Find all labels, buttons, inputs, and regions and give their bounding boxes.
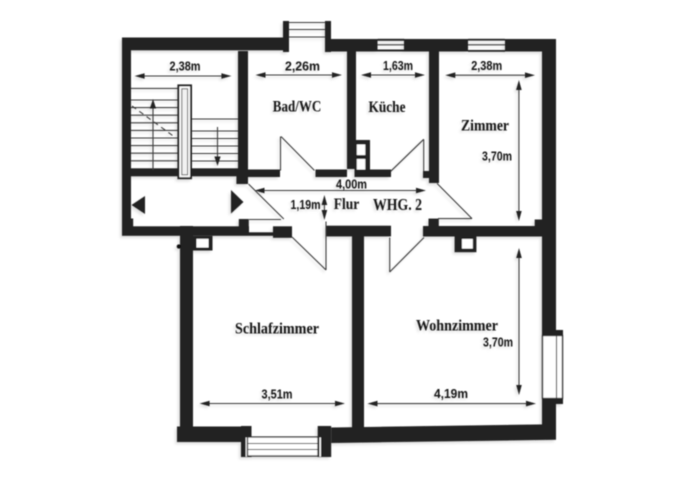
svg-text:Flur: Flur [334,196,360,213]
svg-text:Wohnzimmer: Wohnzimmer [416,318,498,335]
svg-text:1,19m: 1,19m [291,198,321,212]
svg-text:1,63m: 1,63m [383,59,413,73]
svg-text:2,26m: 2,26m [285,59,320,73]
svg-text:3,70m: 3,70m [482,149,512,163]
svg-text:Schlafzimmer: Schlafzimmer [235,321,319,338]
svg-text:3,70m: 3,70m [483,336,513,350]
svg-text:3,51m: 3,51m [262,388,293,402]
svg-text:4,00m: 4,00m [336,178,367,192]
svg-text:2,38m: 2,38m [170,59,201,73]
svg-text:Bad/WC: Bad/WC [273,99,322,116]
svg-text:4,19m: 4,19m [434,387,468,401]
svg-text:2,38m: 2,38m [471,59,502,73]
svg-text:Zimmer: Zimmer [461,118,509,135]
svg-text:WHG. 2: WHG. 2 [373,195,422,214]
svg-text:Küche: Küche [369,99,406,116]
